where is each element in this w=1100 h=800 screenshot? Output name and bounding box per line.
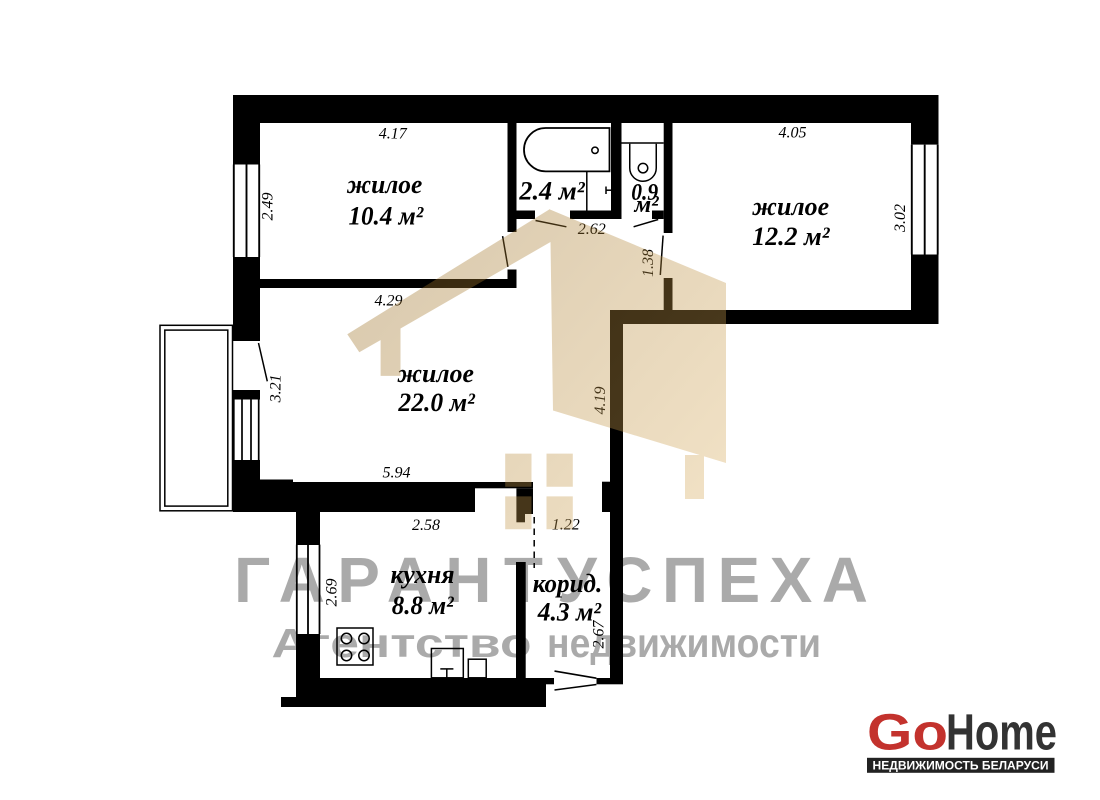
svg-text:5.94: 5.94 xyxy=(383,465,411,482)
svg-text:22.0 м²: 22.0 м² xyxy=(397,388,476,417)
svg-text:Home: Home xyxy=(946,704,1057,761)
svg-text:12.2 м²: 12.2 м² xyxy=(752,222,830,251)
svg-text:Агентство: Агентство xyxy=(272,620,532,666)
svg-text:жилое: жилое xyxy=(751,192,829,221)
svg-text:3.02: 3.02 xyxy=(892,204,909,233)
svg-text:м²: м² xyxy=(633,192,659,218)
svg-text:жилое: жилое xyxy=(397,359,474,388)
svg-text:3.21: 3.21 xyxy=(268,374,285,403)
svg-text:2.49: 2.49 xyxy=(260,193,277,221)
svg-text:2.4 м²: 2.4 м² xyxy=(518,177,586,206)
svg-text:4.17: 4.17 xyxy=(379,126,408,143)
svg-text:2.58: 2.58 xyxy=(412,517,440,534)
svg-text:НЕДВИЖИМОСТЬ БЕЛАРУСИ: НЕДВИЖИМОСТЬ БЕЛАРУСИ xyxy=(873,759,1049,773)
svg-text:Go: Go xyxy=(867,704,948,761)
svg-text:10.4 м²: 10.4 м² xyxy=(349,202,425,231)
svg-text:4.05: 4.05 xyxy=(779,125,807,142)
svg-text:недвижимости: недвижимости xyxy=(547,620,821,666)
svg-text:жилое: жилое xyxy=(346,170,422,199)
